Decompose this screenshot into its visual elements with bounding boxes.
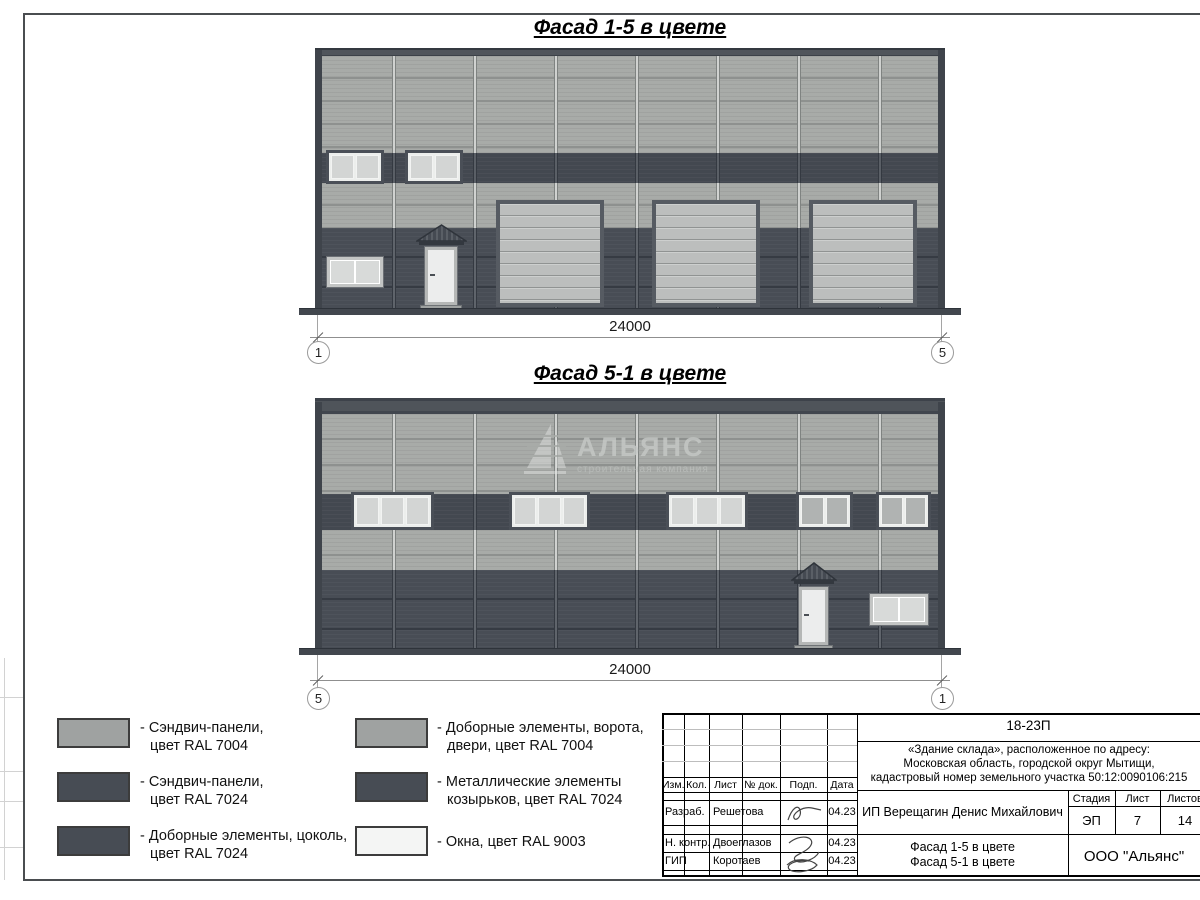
title-block-line — [662, 792, 857, 793]
window — [796, 492, 853, 530]
signature-date: 04.23 — [827, 837, 857, 849]
window-pane — [331, 155, 354, 179]
title-block-line — [1068, 806, 1200, 807]
margin-line — [0, 847, 23, 848]
signature-autograph — [781, 832, 827, 874]
stage-column-header: Лист — [1115, 793, 1160, 805]
legend-swatch-gates-ral7004 — [355, 718, 428, 748]
window — [509, 492, 590, 530]
window-pane — [410, 155, 433, 179]
title-block-line — [662, 825, 857, 826]
parapet-cap — [315, 48, 945, 56]
signature-name: Двоеглазов — [713, 837, 771, 849]
margin-line — [0, 697, 23, 698]
facade-1-5-title: Фасад 1-5 в цвете — [315, 16, 945, 40]
title-block-line — [662, 852, 857, 853]
wall-panels-socle — [315, 570, 945, 648]
dimension-value: 24000 — [315, 661, 945, 678]
legend-line: козырьков, цвет RAL 7024 — [437, 791, 622, 809]
legend-line: - Металлические элементы — [437, 774, 621, 790]
legend-swatch-ral7004 — [57, 718, 130, 748]
stage-column-header: Стадия — [1068, 793, 1115, 805]
signature-date: 04.23 — [827, 806, 857, 818]
legend-swatch-socle-ral7024 — [57, 826, 130, 856]
window — [327, 257, 383, 287]
project-code: 18-23П — [857, 718, 1200, 733]
wall-panels-middle — [315, 530, 945, 570]
title-block-line — [662, 834, 1200, 835]
corner-trim-right — [938, 402, 945, 648]
legend-swatch-windows-ral9003 — [355, 826, 428, 856]
window-pane — [720, 497, 743, 525]
column-header: Изм. — [662, 779, 684, 791]
drawing-sheet: Фасад 1-5 в цвете — [0, 0, 1200, 900]
legend-line: - Сэндвич-панели, — [140, 720, 263, 736]
axis-label: 1 — [315, 345, 322, 360]
legend-line: - Доборные элементы, ворота, — [437, 720, 644, 736]
sectional-gate — [496, 200, 604, 307]
watermark-name: АЛЬЯНС — [577, 434, 709, 461]
legend-line: - Окна, цвет RAL 9003 — [437, 834, 586, 850]
signature-date: 04.23 — [827, 855, 857, 867]
window-pane — [356, 155, 379, 179]
window-pane — [563, 497, 585, 525]
company-watermark: АЛЬЯНС строительная компания — [523, 422, 709, 480]
ground-line — [299, 648, 961, 655]
sheet-frame-left — [23, 13, 25, 881]
title-block-line — [662, 870, 857, 871]
facade-5-1-drawing: АЛЬЯНС строительная компания — [315, 398, 945, 654]
sheet-frame-bottom — [23, 879, 1200, 881]
window-pane — [331, 261, 354, 283]
facade-5-1-title: Фасад 5-1 в цвете — [315, 362, 945, 386]
corner-trim-left — [315, 50, 322, 308]
signature-role: Н. контр. — [665, 837, 710, 849]
signature-role: ГИП — [665, 855, 687, 867]
window-pane — [356, 497, 379, 525]
object-address-line: Московская область, городской округ Мыти… — [862, 758, 1196, 770]
window — [351, 492, 434, 530]
window-pane — [435, 155, 458, 179]
stage-value: ЭП — [1068, 813, 1115, 828]
axis-marker: 1 — [307, 341, 330, 364]
object-address-line: кадастровый номер земельного участка 50:… — [862, 772, 1196, 784]
parapet-cap — [315, 398, 945, 414]
window-pane — [874, 598, 898, 621]
legend-label: - Окна, цвет RAL 9003 — [437, 833, 586, 851]
dimension-line — [310, 680, 950, 681]
title-block-line — [662, 745, 857, 746]
watermark-subtitle: строительная компания — [577, 464, 709, 476]
door-handle — [430, 274, 435, 276]
title-block-line — [742, 713, 743, 875]
window-pane — [696, 497, 719, 525]
window-pane — [406, 497, 429, 525]
window — [870, 594, 928, 625]
sail-logo-icon — [523, 422, 567, 480]
legend-swatch-canopy-ral7024 — [355, 772, 428, 802]
facade-1-5-drawing — [315, 48, 945, 314]
legend-label: - Металлические элементы козырьков, цвет… — [437, 773, 622, 809]
title-block-line — [662, 761, 857, 762]
window-pane — [905, 497, 927, 525]
dimension-value: 24000 — [315, 318, 945, 335]
margin-line — [0, 801, 23, 802]
legend-line: - Доборные элементы, цоколь, — [140, 828, 347, 844]
legend-line: цвет RAL 7024 — [140, 791, 263, 809]
column-header: Кол. — [684, 779, 709, 791]
signature-role: Разраб. — [665, 806, 705, 818]
title-block-line — [857, 790, 1200, 791]
wall-panels-upper — [315, 56, 945, 153]
signature-autograph — [782, 801, 826, 825]
legend-label: - Доборные элементы, цоколь, цвет RAL 70… — [140, 827, 347, 863]
door-handle — [804, 614, 809, 616]
title-block-line — [827, 713, 828, 875]
object-address-line: «Здание склада», расположенное по адресу… — [862, 744, 1196, 756]
sheets-total: 14 — [1160, 813, 1200, 828]
title-block-line — [857, 741, 1200, 742]
stage-column-header: Листов — [1160, 793, 1200, 805]
window — [326, 150, 384, 184]
dimension-line — [310, 337, 950, 338]
sectional-gate — [652, 200, 760, 307]
window-pane — [881, 497, 903, 525]
axis-label: 5 — [939, 345, 946, 360]
window-pane — [538, 497, 560, 525]
title-block-line — [709, 713, 710, 875]
entrance-canopy — [791, 562, 837, 587]
window-pane — [801, 497, 824, 525]
column-header: Дата — [827, 779, 857, 791]
sheet-content-line: Фасад 1-5 в цвете — [857, 840, 1068, 854]
sheet-frame-top — [23, 13, 1200, 15]
window-pane — [356, 261, 379, 283]
legend-line: цвет RAL 7004 — [140, 737, 263, 755]
organization-name: ООО "Альянс" — [1068, 848, 1200, 865]
legend-line: двери, цвет RAL 7004 — [437, 737, 644, 755]
legend-label: - Доборные элементы, ворота, двери, цвет… — [437, 719, 644, 755]
axis-marker: 5 — [307, 687, 330, 710]
window-pane — [826, 497, 849, 525]
column-header: № док. — [742, 779, 780, 791]
window-pane — [900, 598, 924, 621]
entrance-door — [425, 247, 457, 305]
sheet-content-line: Фасад 5-1 в цвете — [857, 855, 1068, 869]
entrance-canopy — [416, 224, 467, 248]
axis-label: 1 — [939, 691, 946, 706]
margin-line — [0, 771, 23, 772]
legend-line: цвет RAL 7024 — [140, 845, 347, 863]
window-pane — [514, 497, 536, 525]
window-pane — [671, 497, 694, 525]
legend-label: - Сэндвич-панели, цвет RAL 7004 — [140, 719, 263, 755]
title-block-line — [662, 729, 857, 730]
window — [876, 492, 931, 530]
entrance-door — [799, 587, 828, 645]
ground-line — [299, 308, 961, 315]
signature-name: Решетова — [713, 806, 763, 818]
axis-label: 5 — [315, 691, 322, 706]
corner-trim-right — [938, 50, 945, 308]
title-block-line — [662, 800, 857, 801]
legend-swatch-ral7024 — [57, 772, 130, 802]
signature-name: Коротаев — [713, 855, 761, 867]
axis-marker: 5 — [931, 341, 954, 364]
title-block: Изм. Кол. Лист № док. Подп. Дата Разраб.… — [662, 713, 1200, 877]
window — [666, 492, 748, 530]
client-name: ИП Верещагин Денис Михайлович — [857, 805, 1068, 819]
title-block-line — [662, 777, 857, 778]
legend-label: - Сэндвич-панели, цвет RAL 7024 — [140, 773, 263, 809]
window-pane — [381, 497, 404, 525]
column-header: Лист — [709, 779, 742, 791]
column-header: Подп. — [780, 779, 827, 791]
axis-marker: 1 — [931, 687, 954, 710]
sheet-number: 7 — [1115, 813, 1160, 828]
sectional-gate — [809, 200, 917, 307]
title-block-line — [684, 713, 685, 875]
corner-trim-left — [315, 402, 322, 648]
title-block-border — [662, 875, 1200, 877]
legend-line: - Сэндвич-панели, — [140, 774, 263, 790]
window — [405, 150, 463, 184]
